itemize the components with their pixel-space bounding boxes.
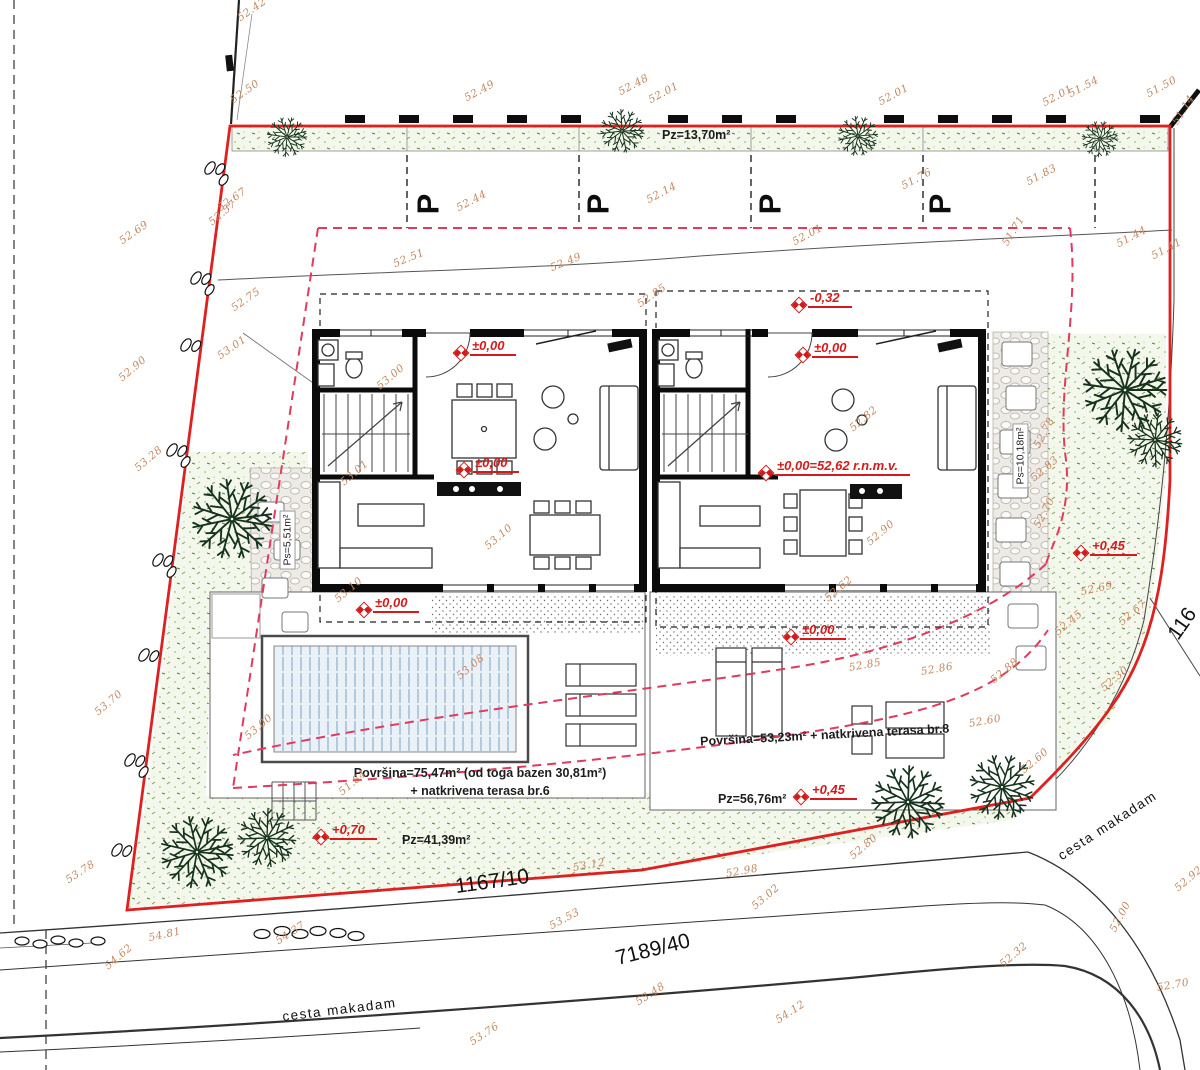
level-value: ±0,00 — [373, 595, 419, 613]
level-value: ±0,00 — [812, 340, 858, 358]
swimming-pool — [262, 636, 528, 762]
left-lawn-area-label: Pz=41,39m² — [402, 833, 470, 847]
site-plan-drawing — [0, 0, 1200, 1070]
level-marker: +0,45 — [795, 782, 857, 800]
level-marker: ±0,00=52,62 r.n.m.v. — [760, 458, 910, 476]
level-value: +0,70 — [330, 822, 377, 840]
level-marker: ±0,00 — [358, 595, 419, 613]
level-marker: ±0,00 — [458, 455, 519, 473]
level-value: ±0,00 — [800, 622, 846, 640]
level-value: +0,45 — [1090, 538, 1137, 556]
site-plan: Pz=13,70m² Površina=75,47m² (od toga baz… — [0, 0, 1200, 1070]
left-path-area-label: Ps=5,51m² — [280, 510, 296, 569]
parking-stall-letter: P — [410, 194, 446, 215]
level-value: +0,45 — [810, 782, 857, 800]
level-marker: +0,70 — [315, 822, 377, 840]
right-path-area-label: Ps=10,18m² — [1012, 424, 1028, 489]
level-marker: ±0,00 — [785, 622, 846, 640]
left-terrace-covered-label: + natkrivena terasa br.6 — [330, 784, 630, 798]
level-marker: ±0,00 — [455, 338, 516, 356]
parking-stall-letter: P — [752, 194, 788, 215]
level-marker: -0,32 — [793, 290, 852, 308]
level-value: ±0,00 — [473, 455, 519, 473]
level-marker: +0,45 — [1075, 538, 1137, 556]
level-value: ±0,00=52,62 r.n.m.v. — [775, 458, 910, 476]
parking-stall-letter: P — [580, 194, 616, 215]
level-marker: ±0,00 — [797, 340, 858, 358]
level-value: -0,32 — [808, 290, 852, 308]
green-strip-area-label: Pz=13,70m² — [662, 128, 730, 142]
level-value: ±0,00 — [470, 338, 516, 356]
left-terrace-area-label: Površina=75,47m² (od toga bazen 30,81m²) — [330, 766, 630, 780]
parking-stall-letter: P — [922, 194, 958, 215]
right-lawn-area-label: Pz=56,76m² — [718, 792, 786, 806]
